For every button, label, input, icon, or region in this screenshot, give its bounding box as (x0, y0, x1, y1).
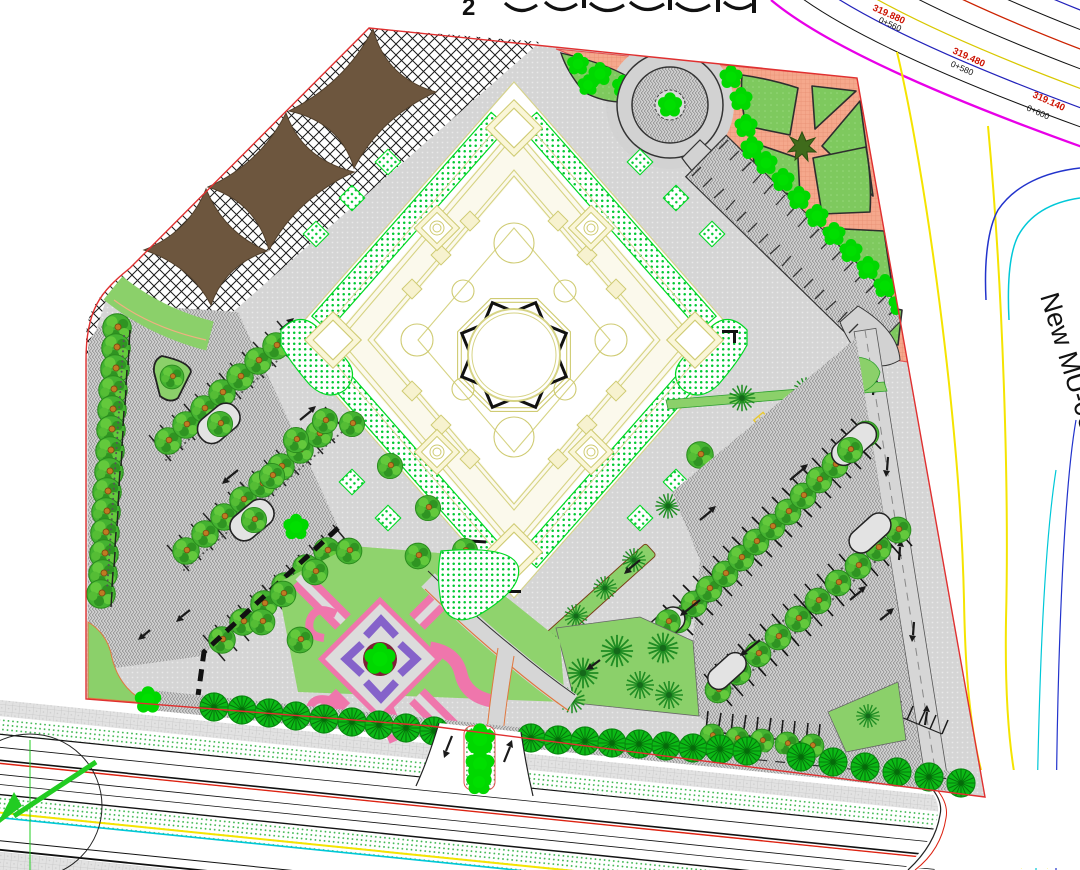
svg-text:New MU-03: New MU-03 (1034, 289, 1080, 434)
svg-text:2: 2 (462, 0, 475, 21)
